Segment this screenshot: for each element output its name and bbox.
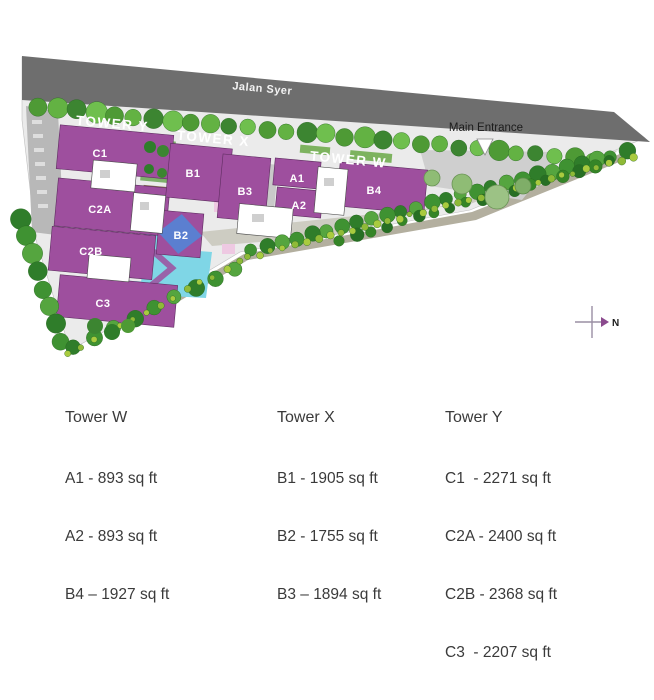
legend-item: A1 - 893 sq ft (65, 468, 169, 490)
legend-column-tower-w: Tower W A1 - 893 sq ft A2 - 893 sq ft B4… (65, 372, 169, 642)
building-label-b3: B3 (237, 186, 252, 198)
building-label-c2b: C2B (79, 246, 103, 258)
north-label: N (612, 318, 619, 329)
building-label-c3: C3 (95, 298, 110, 310)
building-label-b1: B1 (185, 168, 200, 180)
site-plan-svg: Jalan Syer TOWER Y TOWER X TOWER W C1 C2… (0, 0, 654, 362)
building-label-b2: B2 (173, 230, 188, 242)
north-indicator: N (575, 306, 619, 338)
legend-item: C3 - 2207 sq ft (445, 642, 557, 664)
legend-title: Tower Y (445, 408, 557, 427)
main-entrance-label: Main Entrance (449, 122, 523, 134)
building-label-a1: A1 (289, 173, 304, 185)
legend-item: B2 - 1755 sq ft (277, 526, 381, 548)
site-plan-page: { "map": { "road_label": "Jalan Syer", "… (0, 0, 654, 510)
legend-item: A2 - 893 sq ft (65, 526, 169, 548)
legend-column-tower-x: Tower X B1 - 1905 sq ft B2 - 1755 sq ft … (277, 372, 381, 642)
legend-item: B3 – 1894 sq ft (277, 584, 381, 606)
legend-item: C2A - 2400 sq ft (445, 526, 557, 548)
legend-item: B1 - 1905 sq ft (277, 468, 381, 490)
building-label-a2: A2 (291, 200, 306, 212)
building-label-c2a: C2A (88, 204, 112, 216)
legend-item: B4 – 1927 sq ft (65, 584, 169, 606)
legend-title: Tower X (277, 408, 381, 427)
legend-column-tower-y: Tower Y C1 - 2271 sq ft C2A - 2400 sq ft… (445, 372, 557, 700)
legend-item: C1 - 2271 sq ft (445, 468, 557, 490)
legend-item: C2B - 2368 sq ft (445, 584, 557, 606)
building-label-c1: C1 (92, 148, 107, 160)
building-label-b4: B4 (366, 185, 381, 197)
north-arrow-icon (601, 317, 609, 327)
legend-title: Tower W (65, 408, 169, 427)
